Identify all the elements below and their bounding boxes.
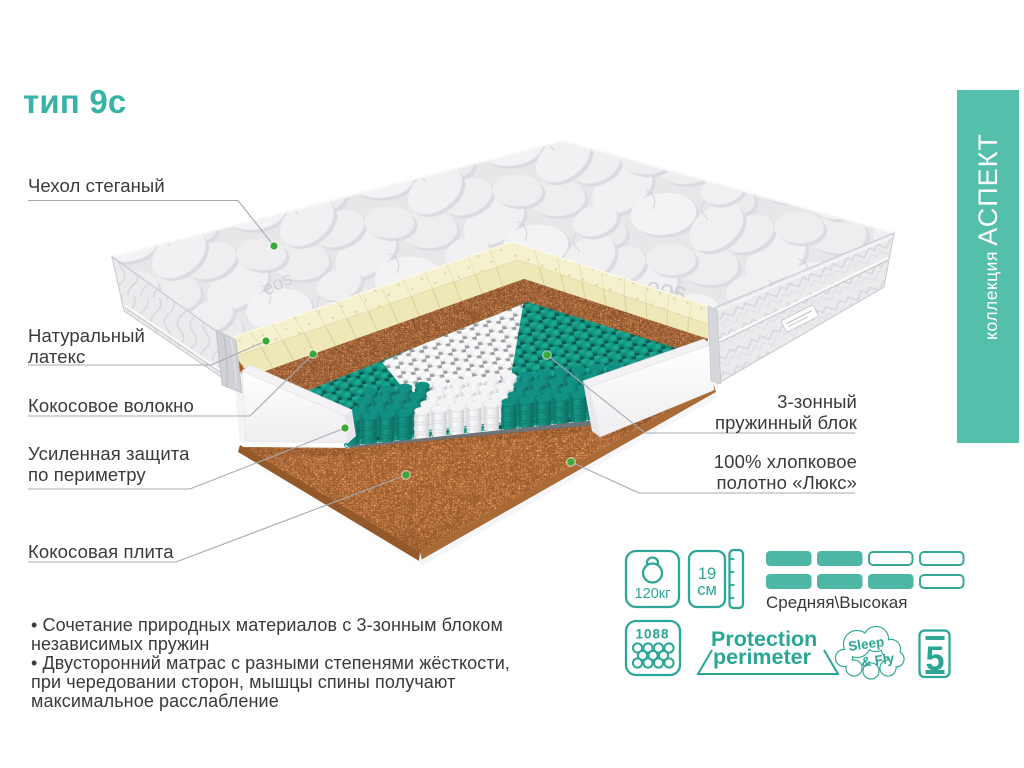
svg-text:Средняя\Высокая: Средняя\Высокая <box>766 593 907 612</box>
svg-text:120кг: 120кг <box>635 586 671 602</box>
svg-text:1088: 1088 <box>635 627 669 642</box>
svg-text:perimeter: perimeter <box>713 645 812 669</box>
svg-text:см: см <box>697 581 717 599</box>
